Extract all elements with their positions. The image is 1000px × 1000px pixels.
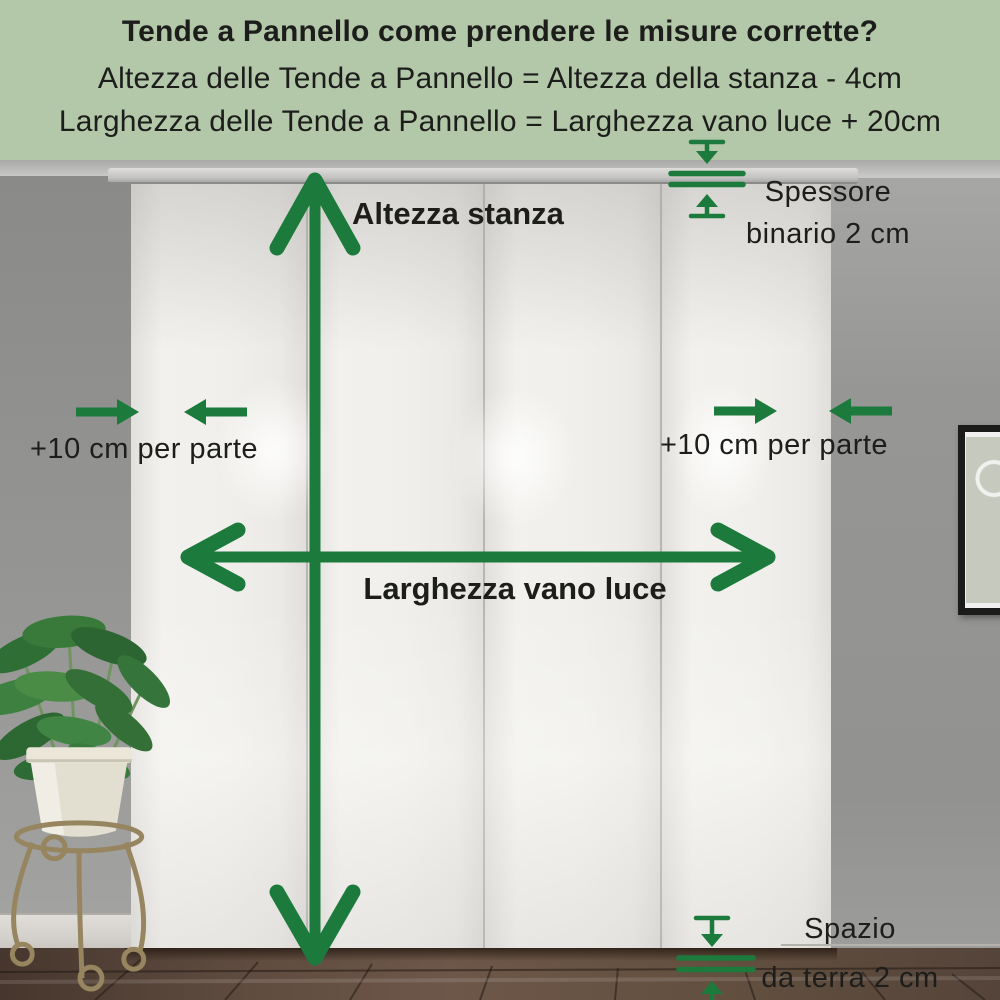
picture-frame <box>958 425 1000 615</box>
frame-artwork <box>966 437 1000 603</box>
side-allowance-right-label: +10 cm per parte <box>660 429 888 462</box>
formula-height: Altezza delle Tende a Pannello = Altezza… <box>0 57 1000 100</box>
header-band: Tende a Pannello come prendere le misure… <box>0 0 1000 160</box>
room-height-label: Altezza stanza <box>352 196 564 232</box>
opening-width-label: Larghezza vano luce <box>340 571 690 607</box>
page-title: Tende a Pannello come prendere le misure… <box>0 0 1000 51</box>
curtain-panel <box>660 180 831 952</box>
track-thickness-line2: binario 2 cm <box>746 218 910 250</box>
curtain-panel <box>483 180 660 952</box>
track-thickness-label: Spessore binario 2 cm <box>718 171 938 255</box>
floor-gap-label: Spazio da terra 2 cm <box>740 905 960 1000</box>
formula-width: Larghezza delle Tende a Pannello = Largh… <box>0 100 1000 143</box>
floor-gap-line2: da terra 2 cm <box>761 962 938 994</box>
infographic: Tende a Pannello come prendere le misure… <box>0 0 1000 1000</box>
window-light <box>428 360 603 555</box>
panel-curtains <box>131 180 831 952</box>
track-thickness-line1: Spessore <box>765 176 892 208</box>
floor-gap-line1: Spazio <box>804 913 896 945</box>
plant-stand <box>12 823 143 989</box>
curtain-panel <box>306 180 483 952</box>
side-allowance-left-label: +10 cm per parte <box>30 433 258 466</box>
potted-plant <box>0 592 174 1000</box>
